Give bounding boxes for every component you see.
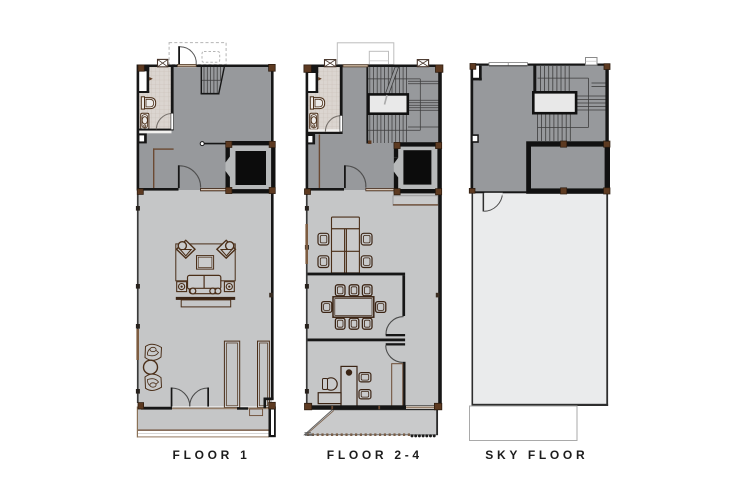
- svg-text:SKY FLOOR: SKY FLOOR: [485, 448, 588, 462]
- svg-text:FLOOR 2-4: FLOOR 2-4: [327, 448, 423, 462]
- svg-text:FLOOR 1: FLOOR 1: [173, 448, 251, 462]
